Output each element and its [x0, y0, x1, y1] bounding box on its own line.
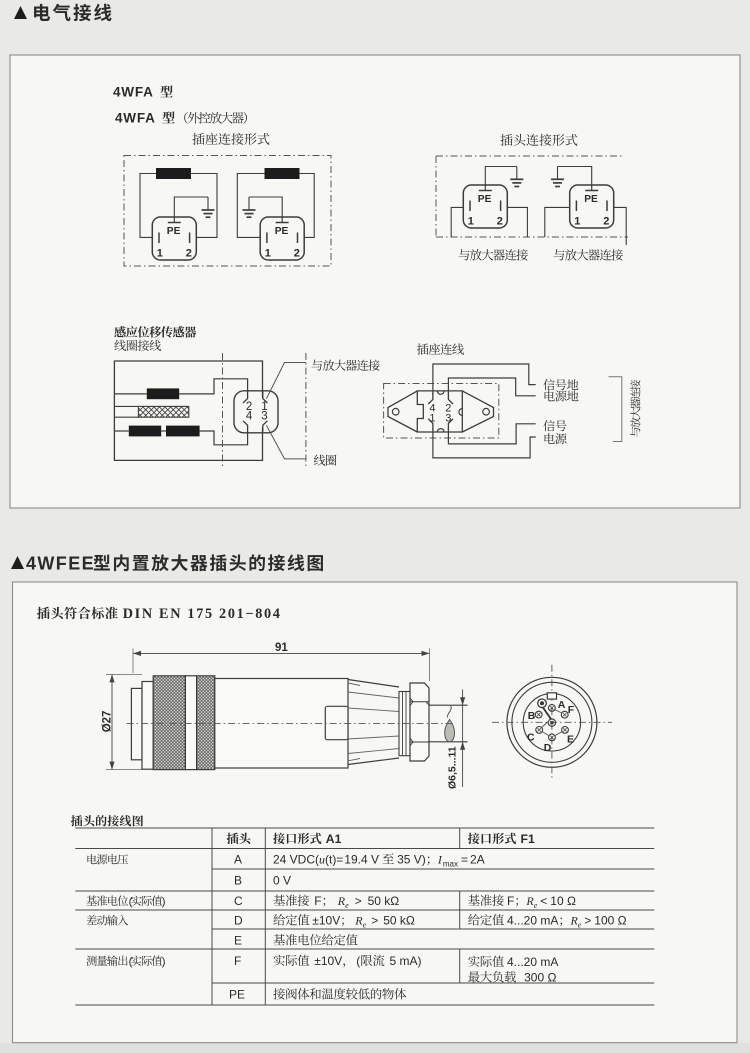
svg-text:C: C [527, 732, 535, 744]
svg-text:PE: PE [275, 226, 289, 237]
svg-text:2: 2 [497, 216, 503, 228]
svg-text:4WFA: 4WFA [115, 111, 156, 126]
svg-text:4WFA: 4WFA [113, 85, 154, 100]
svg-text:B: B [528, 710, 536, 722]
svg-text:PE: PE [167, 226, 181, 237]
svg-text:>: > [371, 914, 378, 928]
svg-text:DIN EN 175 201−804: DIN EN 175 201−804 [123, 606, 282, 622]
svg-text:Ø6,5...11: Ø6,5...11 [446, 746, 458, 789]
svg-text:D: D [234, 914, 243, 928]
svg-text:(: ( [129, 896, 133, 908]
svg-text:(: ( [356, 954, 360, 968]
svg-text:2: 2 [186, 248, 192, 260]
svg-text:F: F [507, 894, 514, 908]
svg-text:F: F [314, 894, 321, 908]
svg-text:24 VDC: 24 VDC [273, 853, 315, 867]
svg-text:F: F [234, 954, 241, 968]
svg-text:4...20 mA: 4...20 mA [507, 955, 558, 969]
svg-text:35 V): 35 V) [397, 853, 426, 867]
svg-text:19.4 V: 19.4 V [344, 853, 379, 867]
svg-text:1: 1 [429, 413, 435, 425]
svg-text:50 kΩ: 50 kΩ [368, 894, 400, 908]
svg-text:PE: PE [229, 988, 245, 1002]
svg-text:A: A [234, 853, 242, 867]
svg-text:3: 3 [445, 413, 451, 425]
svg-text:A: A [558, 699, 566, 711]
svg-text:PE: PE [478, 194, 492, 205]
svg-text:A1: A1 [326, 832, 342, 846]
svg-text:): ) [162, 956, 166, 968]
svg-text:±10V: ±10V [314, 954, 342, 968]
svg-text:4: 4 [246, 411, 253, 423]
svg-text:D: D [544, 742, 552, 754]
svg-text:4...20 mA: 4...20 mA [507, 914, 558, 928]
svg-text:±10V: ±10V [312, 914, 340, 928]
svg-text:E: E [234, 934, 242, 948]
svg-text:1: 1 [574, 216, 580, 228]
svg-text:B: B [234, 874, 242, 888]
svg-text:max: max [443, 860, 458, 869]
svg-text:1: 1 [468, 216, 474, 228]
svg-text:1: 1 [157, 248, 163, 260]
svg-text:=: = [336, 853, 343, 867]
svg-text:1: 1 [265, 248, 271, 260]
svg-text:10 Ω: 10 Ω [550, 894, 576, 908]
svg-text:(t): (t) [325, 853, 336, 867]
svg-text:e: e [578, 921, 582, 930]
svg-text:e: e [345, 901, 349, 910]
svg-text:e: e [363, 921, 367, 930]
svg-text:): ) [162, 896, 166, 908]
svg-text:100 Ω: 100 Ω [594, 914, 626, 928]
svg-text:PE: PE [584, 194, 598, 205]
svg-text:>: > [355, 894, 362, 908]
svg-text:3: 3 [261, 411, 267, 423]
svg-text:0 V: 0 V [273, 874, 291, 888]
svg-text:F1: F1 [521, 832, 535, 846]
svg-text:F: F [568, 704, 575, 716]
svg-text:4WFEE: 4WFEE [26, 554, 95, 574]
svg-text:2: 2 [603, 216, 609, 228]
svg-text:=: = [461, 853, 468, 867]
svg-text:<: < [540, 894, 547, 908]
svg-text:91: 91 [275, 642, 288, 654]
svg-text:50 kΩ: 50 kΩ [383, 914, 415, 928]
svg-text:2: 2 [294, 248, 300, 260]
svg-text:5 mA): 5 mA) [390, 954, 422, 968]
svg-text:>: > [584, 914, 591, 928]
svg-text:Ø27: Ø27 [102, 711, 114, 733]
svg-text:300 Ω: 300 Ω [524, 971, 556, 985]
svg-text:(: ( [129, 956, 133, 968]
svg-text:C: C [234, 894, 243, 908]
svg-text:e: e [534, 901, 538, 910]
svg-text:E: E [567, 734, 574, 746]
svg-text:2A: 2A [470, 853, 485, 867]
